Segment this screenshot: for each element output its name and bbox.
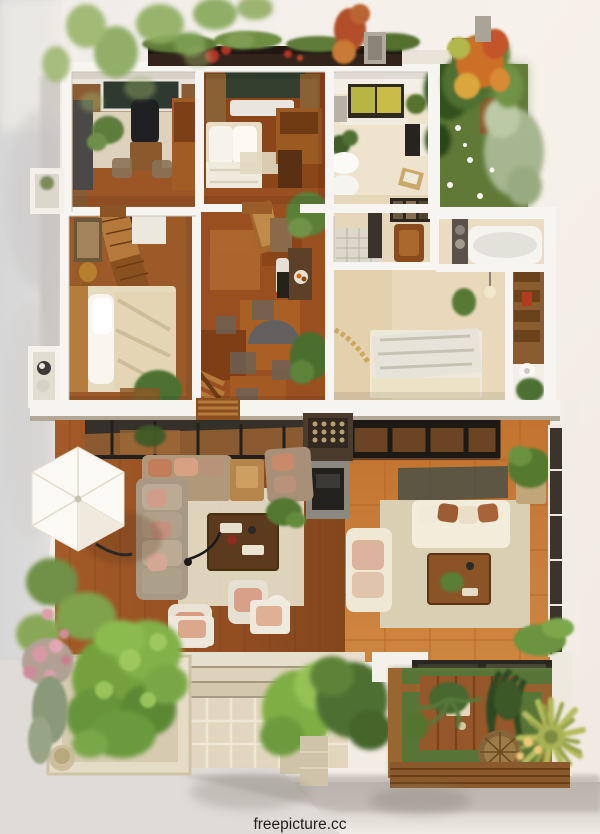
svg-text:freepicture.cc: freepicture.cc [253,816,346,833]
